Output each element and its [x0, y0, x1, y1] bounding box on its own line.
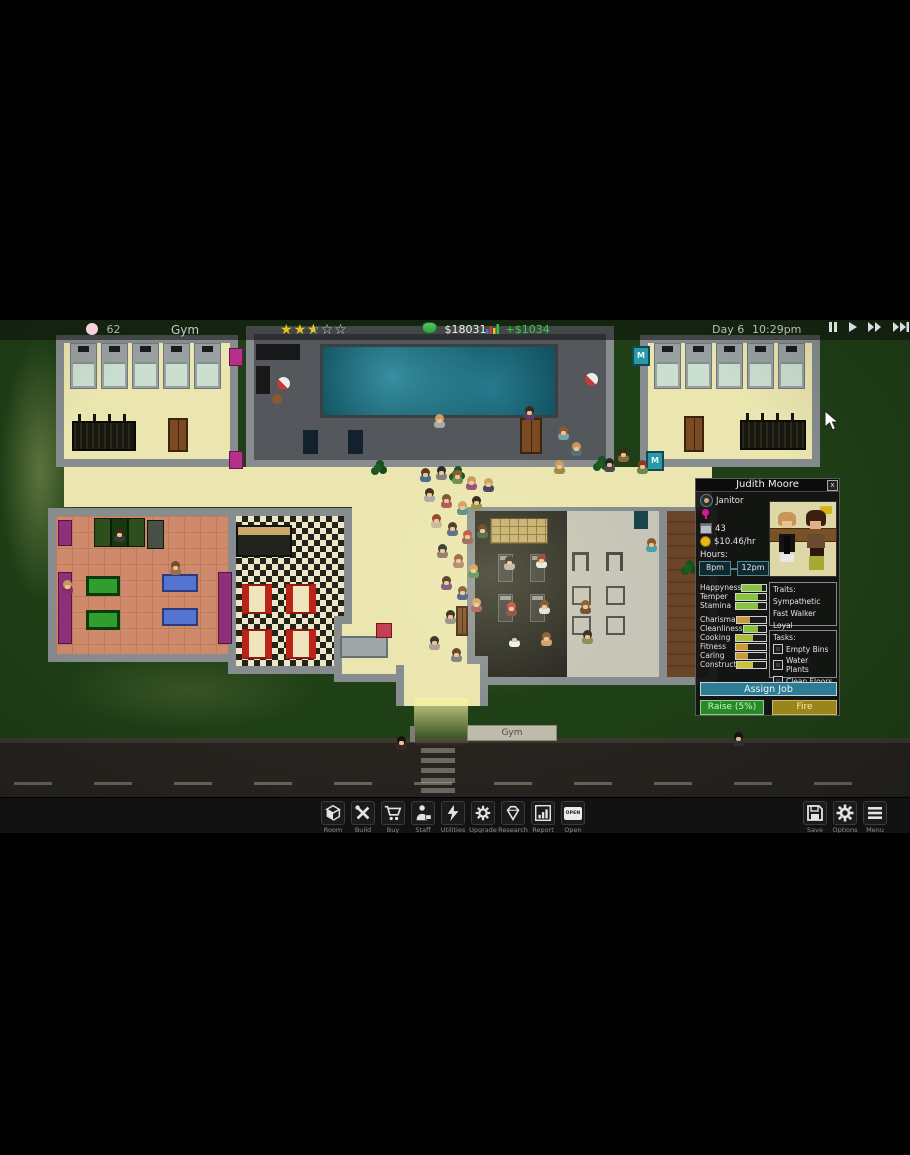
person[interactable]: [462, 530, 473, 544]
vending-machine[interactable]: [128, 518, 145, 547]
play-button[interactable]: [848, 320, 858, 340]
pool-door: [348, 430, 363, 454]
dining-booth: [286, 584, 316, 614]
table-green: [86, 610, 120, 630]
person[interactable]: [447, 522, 458, 536]
toolbar-label: Save: [807, 826, 823, 833]
skip-button[interactable]: [892, 320, 910, 340]
exercise-ball: [272, 394, 282, 404]
vending-machine[interactable]: [147, 520, 164, 549]
dining-booth: [286, 629, 316, 659]
person[interactable]: [114, 528, 125, 542]
toolbar-button-buy[interactable]: Buy: [380, 801, 406, 833]
shower-stall: [70, 343, 97, 389]
population-count: 62: [107, 323, 121, 336]
age-value: 43: [715, 524, 726, 534]
person[interactable]: [471, 598, 482, 612]
options-icon: [833, 801, 857, 825]
staff-icon: [411, 801, 435, 825]
stat-row-cleanliness: Cleanliness: [700, 624, 767, 633]
pool-water: [320, 344, 558, 418]
toolbar-button-menu[interactable]: Menu: [862, 801, 888, 833]
hud-bar: 62 Gym ★★☆★☆☆ $18031 +$1034 Day 6 10:29p…: [0, 320, 910, 340]
dining-booth: [242, 584, 272, 614]
stat-row-stamina: Stamina: [700, 601, 767, 610]
income-value: +$1034: [506, 323, 550, 336]
person[interactable]: [466, 476, 477, 490]
pullup-frame: [606, 552, 623, 571]
close-icon[interactable]: x: [827, 480, 838, 491]
toolbar-label: Utilities: [441, 826, 465, 833]
toolbar-label: Upgrade: [469, 826, 497, 833]
person[interactable]: [457, 586, 468, 600]
kitchen-unit: [376, 623, 392, 638]
person[interactable]: [420, 468, 431, 482]
person[interactable]: [436, 466, 447, 480]
person[interactable]: [571, 442, 582, 456]
person[interactable]: [539, 600, 550, 614]
location-label: Gym: [150, 320, 220, 340]
person[interactable]: [477, 524, 488, 538]
toolbar-button-report[interactable]: Report: [530, 801, 556, 833]
job-icon: [700, 494, 713, 507]
wage-row: $10.46/hr: [700, 536, 756, 547]
shower-stall: [716, 343, 743, 389]
toolbar-button-room[interactable]: Room: [320, 801, 346, 833]
stat-row-charisma: Charisma: [700, 615, 767, 624]
money-icon: [422, 322, 437, 334]
star-half-icon: ☆★: [307, 320, 321, 340]
stat-row-fitness: Fitness: [700, 642, 767, 651]
person[interactable]: [646, 538, 657, 552]
bench-purple: [218, 572, 232, 644]
shower-stall: [132, 343, 159, 389]
person[interactable]: [541, 632, 552, 646]
person[interactable]: [506, 602, 517, 616]
hours-start-button[interactable]: 8pm: [699, 561, 731, 576]
person[interactable]: [429, 636, 440, 650]
sink-counter: [740, 420, 806, 450]
person[interactable]: [483, 478, 494, 492]
beach-ball: [584, 372, 599, 387]
stat-row-cooking: Cooking: [700, 633, 767, 642]
toolbar-label: Room: [324, 826, 343, 833]
star-rating: ★★☆★☆☆: [280, 320, 348, 340]
assign-job-button[interactable]: Assign Job: [700, 682, 837, 696]
person[interactable]: [554, 460, 565, 474]
task-checkbox[interactable]: [773, 660, 783, 670]
money-value: $18031: [445, 323, 487, 336]
crosswalk: [421, 748, 455, 800]
studio-door: [634, 511, 648, 529]
task-checkbox[interactable]: [773, 644, 783, 654]
locker-cabinet: [684, 416, 704, 452]
stat-row-happyness: Happyness: [700, 583, 767, 592]
fast-forward-button[interactable]: [867, 320, 882, 340]
vending-machine[interactable]: M: [632, 346, 650, 366]
upgrade-icon: [471, 801, 495, 825]
pin-icon: [702, 509, 709, 516]
person[interactable]: [733, 732, 744, 746]
person[interactable]: [604, 458, 615, 472]
population-icon: [86, 323, 98, 335]
person[interactable]: [453, 554, 464, 568]
person[interactable]: [509, 633, 520, 647]
toolbar-label: Research: [498, 826, 528, 833]
locker-cabinet: [168, 418, 188, 452]
shower-stall: [685, 343, 712, 389]
toolbar-button-build[interactable]: Build: [350, 801, 376, 833]
pool-lockers: [256, 366, 270, 394]
toolbar-button-options[interactable]: Options: [832, 801, 858, 833]
shower-stall: [194, 343, 221, 389]
toolbar-button-upgrade[interactable]: Upgrade: [470, 801, 496, 833]
room-icon: [321, 801, 345, 825]
person[interactable]: [580, 600, 591, 614]
bottom-toolbar: RoomBuildBuyStaffUtilitiesUpgradeResearc…: [0, 797, 910, 833]
shower-stall: [747, 343, 774, 389]
kitchen-counter: [236, 525, 292, 557]
person[interactable]: [558, 426, 569, 440]
person[interactable]: [471, 496, 482, 510]
toolbar-label: Staff: [415, 826, 430, 833]
bench-purple: [58, 520, 72, 546]
task-label: Water Plants: [786, 656, 833, 674]
traits-label: Traits:: [773, 585, 833, 594]
sign-post: [410, 726, 415, 742]
plant: [596, 460, 604, 468]
person[interactable]: [445, 610, 456, 624]
staff-name: Judith Moore: [696, 479, 839, 492]
toolbar-main-group: RoomBuildBuyStaffUtilitiesUpgradeResearc…: [320, 801, 586, 833]
shower-stall: [163, 343, 190, 389]
stat-row-temper: Temper: [700, 592, 767, 601]
traits-box: Traits: SympatheticFast WalkerLoyal: [769, 582, 837, 626]
toolbar-button-open[interactable]: OPENOpen: [560, 801, 586, 833]
person[interactable]: [457, 501, 468, 515]
person[interactable]: [170, 561, 181, 575]
pool-door: [303, 430, 318, 454]
toolbar-label: Buy: [387, 826, 399, 833]
save-icon: [803, 801, 827, 825]
shower-stall: [101, 343, 128, 389]
person[interactable]: [396, 736, 407, 750]
playback-controls: [828, 320, 910, 340]
person[interactable]: [504, 556, 515, 570]
toolbar-button-research[interactable]: Research: [500, 801, 526, 833]
weight-machine: [606, 586, 625, 605]
utilities-icon: [441, 801, 465, 825]
toolbar-label: Build: [355, 826, 371, 833]
tasks-box: Tasks: Empty BinsWater PlantsClean Floor…: [769, 630, 837, 678]
toolbar-label: Menu: [866, 826, 884, 833]
star-full-icon: ★: [294, 322, 308, 338]
trait-item: Sympathetic: [773, 597, 833, 606]
task-label: Empty Bins: [786, 645, 828, 654]
door-marker: [229, 451, 243, 469]
table-green: [86, 576, 120, 596]
build-icon: [351, 801, 375, 825]
shower-stall: [778, 343, 805, 389]
job-row: Janitor: [700, 494, 744, 507]
money-group: $18031: [422, 320, 487, 340]
report-icon: [531, 801, 555, 825]
toolbar-button-save[interactable]: Save: [802, 801, 828, 833]
sink-counter: [72, 421, 136, 451]
staff-panel: Judith Moore x Janitor 43 $10.46/hr Hour…: [695, 478, 840, 716]
hours-end-button[interactable]: 12pm: [737, 561, 769, 576]
door-marker: [229, 348, 243, 366]
menu-icon: [863, 801, 887, 825]
table-blue: [162, 574, 198, 592]
day-label: Day 6: [712, 320, 744, 340]
calendar-icon: [700, 523, 712, 534]
toolbar-system-group: SaveOptionsMenu: [802, 801, 888, 833]
age-row: 43: [700, 523, 726, 534]
pool-lockers: [256, 344, 300, 360]
income-group: +$1034: [486, 320, 550, 340]
buy-icon: [381, 801, 405, 825]
person[interactable]: [434, 414, 445, 428]
gym-sign: Gym: [467, 725, 557, 741]
person[interactable]: [452, 470, 463, 484]
person[interactable]: [468, 564, 479, 578]
weight-machine: [606, 616, 625, 635]
population-group: 62: [86, 320, 121, 340]
locker-cabinet: [520, 418, 542, 454]
plant: [684, 564, 692, 572]
wage-value: $10.46/hr: [714, 537, 756, 547]
open-icon: OPEN: [561, 801, 585, 825]
person[interactable]: [618, 448, 629, 462]
star-empty-icon: ☆: [321, 322, 335, 338]
toolbar-label: Report: [532, 826, 554, 833]
person[interactable]: [451, 648, 462, 662]
toolbar-button-utilities[interactable]: Utilities: [440, 801, 466, 833]
mouse-cursor: [824, 410, 840, 436]
dining-booth: [242, 629, 272, 659]
stat-row-construct: Construct: [700, 660, 767, 669]
person[interactable]: [536, 554, 547, 568]
staff-portrait: [769, 501, 837, 577]
hours-label: Hours:: [700, 550, 728, 560]
stats-list: HappynessTemperStaminaCharismaCleanlines…: [700, 583, 767, 669]
hours-buttons: 8pm 12pm: [699, 561, 769, 576]
pause-button[interactable]: [828, 320, 838, 340]
lobby-bench: [456, 606, 468, 636]
job-label: Janitor: [716, 496, 744, 506]
tasks-label: Tasks:: [773, 633, 833, 642]
stat-row-caring: Caring: [700, 651, 767, 660]
vending-machine[interactable]: M: [646, 451, 664, 471]
raise-button[interactable]: Raise (5%): [700, 700, 764, 715]
person[interactable]: [441, 576, 452, 590]
shower-stall: [654, 343, 681, 389]
person[interactable]: [62, 580, 73, 594]
person[interactable]: [437, 544, 448, 558]
gym-lockers: [490, 518, 548, 544]
location-pin-row: [702, 509, 709, 516]
toolbar-label: Options: [832, 826, 857, 833]
trait-item: Loyal: [773, 621, 833, 630]
task-row: Empty Bins: [773, 644, 833, 654]
star-empty-icon: ☆: [334, 322, 348, 338]
coin-icon: [700, 536, 711, 547]
task-row: Water Plants: [773, 656, 833, 674]
star-full-icon: ★: [280, 322, 294, 338]
trait-item: Fast Walker: [773, 609, 833, 618]
income-chart-icon: [486, 321, 499, 341]
table-blue: [162, 608, 198, 626]
vending-machine[interactable]: [94, 518, 111, 547]
person[interactable]: [424, 488, 435, 502]
screen: M M: [0, 0, 910, 1155]
person[interactable]: [441, 494, 452, 508]
person[interactable]: [431, 514, 442, 528]
plant: [374, 464, 382, 472]
pullup-frame: [572, 552, 589, 571]
time-label: 10:29pm: [752, 320, 801, 340]
toolbar-button-staff[interactable]: Staff: [410, 801, 436, 833]
person[interactable]: [637, 460, 648, 474]
person[interactable]: [582, 630, 593, 644]
faucet: [746, 413, 749, 421]
research-icon: [501, 801, 525, 825]
corridor-main[interactable]: [64, 467, 712, 507]
beach-ball: [276, 376, 291, 391]
person[interactable]: [524, 406, 535, 420]
reception-counter: [340, 636, 388, 658]
faucet: [78, 414, 81, 422]
toolbar-label: Open: [564, 826, 581, 833]
fire-button[interactable]: Fire: [772, 700, 837, 715]
game-viewport[interactable]: M M: [0, 320, 910, 833]
